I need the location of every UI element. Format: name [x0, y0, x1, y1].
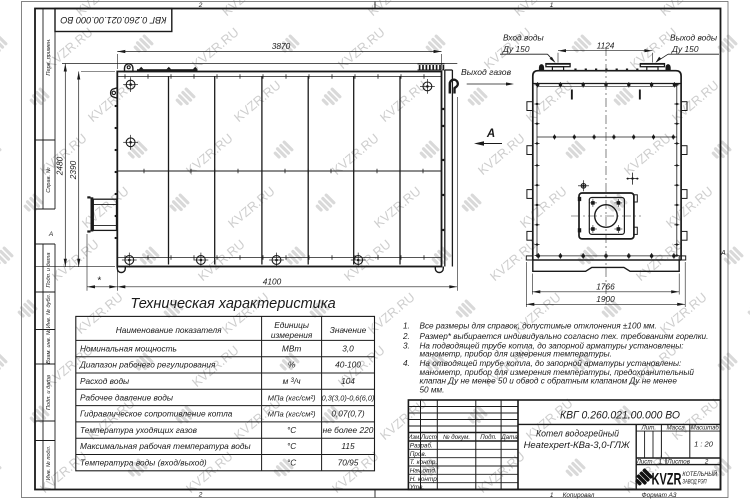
svg-text:1124: 1124	[597, 40, 615, 50]
svg-text:1766: 1766	[596, 281, 615, 291]
svg-text:0,07(0,7): 0,07(0,7)	[331, 409, 364, 419]
svg-text:манометр, прибор для измерения: манометр, прибор для измерения температу…	[420, 368, 695, 377]
svg-text:°С: °С	[287, 458, 297, 468]
svg-text:МПа (кгс/см²): МПа (кгс/см²)	[268, 393, 316, 402]
svg-text:1: 1	[550, 2, 554, 9]
svg-text:1900: 1900	[596, 294, 615, 304]
svg-text:115: 115	[341, 441, 355, 451]
svg-text:4.: 4.	[403, 359, 410, 368]
svg-text:Максимальная рабочая температу: Максимальная рабочая температура воды	[80, 441, 251, 451]
svg-text:Формат А3: Формат А3	[642, 492, 677, 499]
svg-text:Лист: Лист	[420, 434, 437, 441]
svg-text:%: %	[288, 360, 296, 370]
svg-text:Подп.: Подп.	[480, 434, 496, 441]
svg-text:Значение: Значение	[330, 325, 367, 335]
svg-text:Диапазон рабочего регулировани: Диапазон рабочего регулирования	[79, 360, 216, 370]
svg-text:Рабочее давление воды: Рабочее давление воды	[80, 392, 173, 402]
svg-text:2: 2	[198, 2, 203, 9]
svg-text:Листов: Листов	[666, 458, 690, 465]
svg-text:На отводящей трубе котла, до з: На отводящей трубе котла, до запорной ар…	[420, 359, 682, 368]
svg-text:КВГ 0.260.021.00.000 ВО: КВГ 0.260.021.00.000 ВО	[60, 15, 166, 25]
svg-text:3.: 3.	[403, 341, 410, 350]
svg-text:Heatexpert-КВа-3,0-ГЛЖ: Heatexpert-КВа-3,0-ГЛЖ	[524, 440, 631, 451]
svg-text:2.: 2.	[402, 332, 410, 341]
svg-text:Изм.: Изм.	[408, 434, 421, 441]
svg-text:Подп. и дата: Подп. и дата	[46, 375, 52, 410]
svg-text:Перв. примен.: Перв. примен.	[46, 38, 52, 75]
svg-text:2390: 2390	[68, 160, 78, 180]
svg-text:1 : 20: 1 : 20	[694, 440, 714, 449]
svg-text:А: А	[486, 128, 495, 140]
svg-text:Размер* выбирается индивидуаль: Размер* выбирается индивидуально согласн…	[420, 332, 709, 341]
svg-text:104: 104	[341, 376, 355, 386]
svg-text:Единицы: Единицы	[274, 320, 309, 330]
svg-text:Лит.: Лит.	[641, 424, 657, 431]
svg-text:1.: 1.	[403, 322, 410, 331]
svg-text:Инв. № дубл.: Инв. № дубл.	[46, 294, 52, 328]
svg-text:3870: 3870	[272, 41, 291, 51]
svg-text:Инв. № подл.: Инв. № подл.	[46, 446, 52, 481]
svg-text:Масштаб: Масштаб	[691, 425, 720, 431]
svg-text:Гидравлическое сопротивление к: Гидравлическое сопротивление котла	[80, 409, 233, 419]
svg-text:Номинальная мощность: Номинальная мощность	[80, 343, 177, 353]
svg-text:Т. контр.: Т. контр.	[410, 459, 438, 466]
svg-text:3,0: 3,0	[342, 343, 354, 353]
svg-text:50 мм.: 50 мм.	[420, 386, 445, 395]
svg-text:Пров.: Пров.	[410, 451, 427, 458]
svg-text:КОТЕЛЬНЫЙ: КОТЕЛЬНЫЙ	[682, 469, 717, 478]
svg-text:МПа (кгс/см²): МПа (кгс/см²)	[268, 410, 316, 419]
svg-text:°С: °С	[287, 441, 297, 451]
svg-text:°С: °С	[287, 425, 297, 435]
svg-text:Температура воды (вход/выход): Температура воды (вход/выход)	[80, 458, 207, 468]
svg-text:70/95: 70/95	[338, 458, 359, 468]
svg-text:Справ. №: Справ. №	[46, 167, 52, 192]
svg-text:КВГ 0.260.021.00.000 ВО: КВГ 0.260.021.00.000 ВО	[560, 409, 680, 421]
svg-text:1: 1	[550, 492, 554, 499]
svg-text:2: 2	[198, 492, 203, 499]
svg-text:№ докум.: № докум.	[443, 434, 470, 441]
svg-text:2480: 2480	[54, 156, 64, 176]
svg-text:2: 2	[704, 458, 709, 465]
svg-text:Копировал: Копировал	[563, 492, 595, 499]
svg-text:Выход газов: Выход газов	[461, 67, 512, 77]
svg-text:не более 220: не более 220	[323, 425, 374, 435]
svg-text:ЗАВОД РЭП: ЗАВОД РЭП	[682, 478, 706, 485]
svg-text:Техническая характеристика: Техническая характеристика	[130, 296, 335, 312]
svg-text:Взам. инв. №: Взам. инв. №	[46, 329, 52, 364]
svg-text:А: А	[48, 231, 53, 238]
svg-text:Котел водогрейный: Котел водогрейный	[536, 428, 620, 439]
svg-text:Расход воды: Расход воды	[80, 376, 129, 386]
svg-text:Лист: Лист	[636, 458, 653, 465]
svg-text:Нач.отд.: Нач.отд.	[410, 466, 437, 474]
svg-text:Вход воды: Вход воды	[503, 33, 544, 43]
svg-text:Дата: Дата	[500, 434, 518, 441]
svg-text:Ду 150: Ду 150	[671, 44, 699, 54]
svg-text:Масса: Масса	[666, 424, 685, 431]
svg-text:KVZR: KVZR	[652, 471, 682, 489]
svg-text:1: 1	[659, 458, 662, 465]
svg-text:4100: 4100	[263, 276, 282, 286]
svg-text:Температура уходящих газов: Температура уходящих газов	[80, 425, 198, 435]
svg-text:измерения: измерения	[271, 330, 313, 340]
svg-text:Разраб.: Разраб.	[410, 441, 433, 449]
svg-text:А: А	[720, 250, 726, 257]
svg-text:0,3(3,0)-0,6(6,0): 0,3(3,0)-0,6(6,0)	[322, 393, 375, 402]
svg-text:клапан Ду не менее 50 и обвод: клапан Ду не менее 50 и обвод с обратным…	[420, 377, 678, 386]
svg-text:Ду 150: Ду 150	[502, 44, 530, 54]
svg-text:МВт: МВт	[282, 343, 301, 353]
svg-text:Н. контр.: Н. контр.	[410, 476, 439, 483]
svg-text:Выход воды: Выход воды	[670, 33, 717, 43]
svg-text:40-100: 40-100	[335, 360, 361, 370]
svg-text:Все размеры для справок, допус: Все размеры для справок, допустимые откл…	[420, 322, 657, 331]
svg-text:Утв.: Утв.	[409, 484, 425, 491]
svg-text:Подп. и дата: Подп. и дата	[46, 252, 52, 287]
svg-text:манометр, прибор для измерения: манометр, прибор для измерения температу…	[420, 350, 612, 359]
svg-text:Наименование показателя: Наименование показателя	[116, 325, 222, 335]
